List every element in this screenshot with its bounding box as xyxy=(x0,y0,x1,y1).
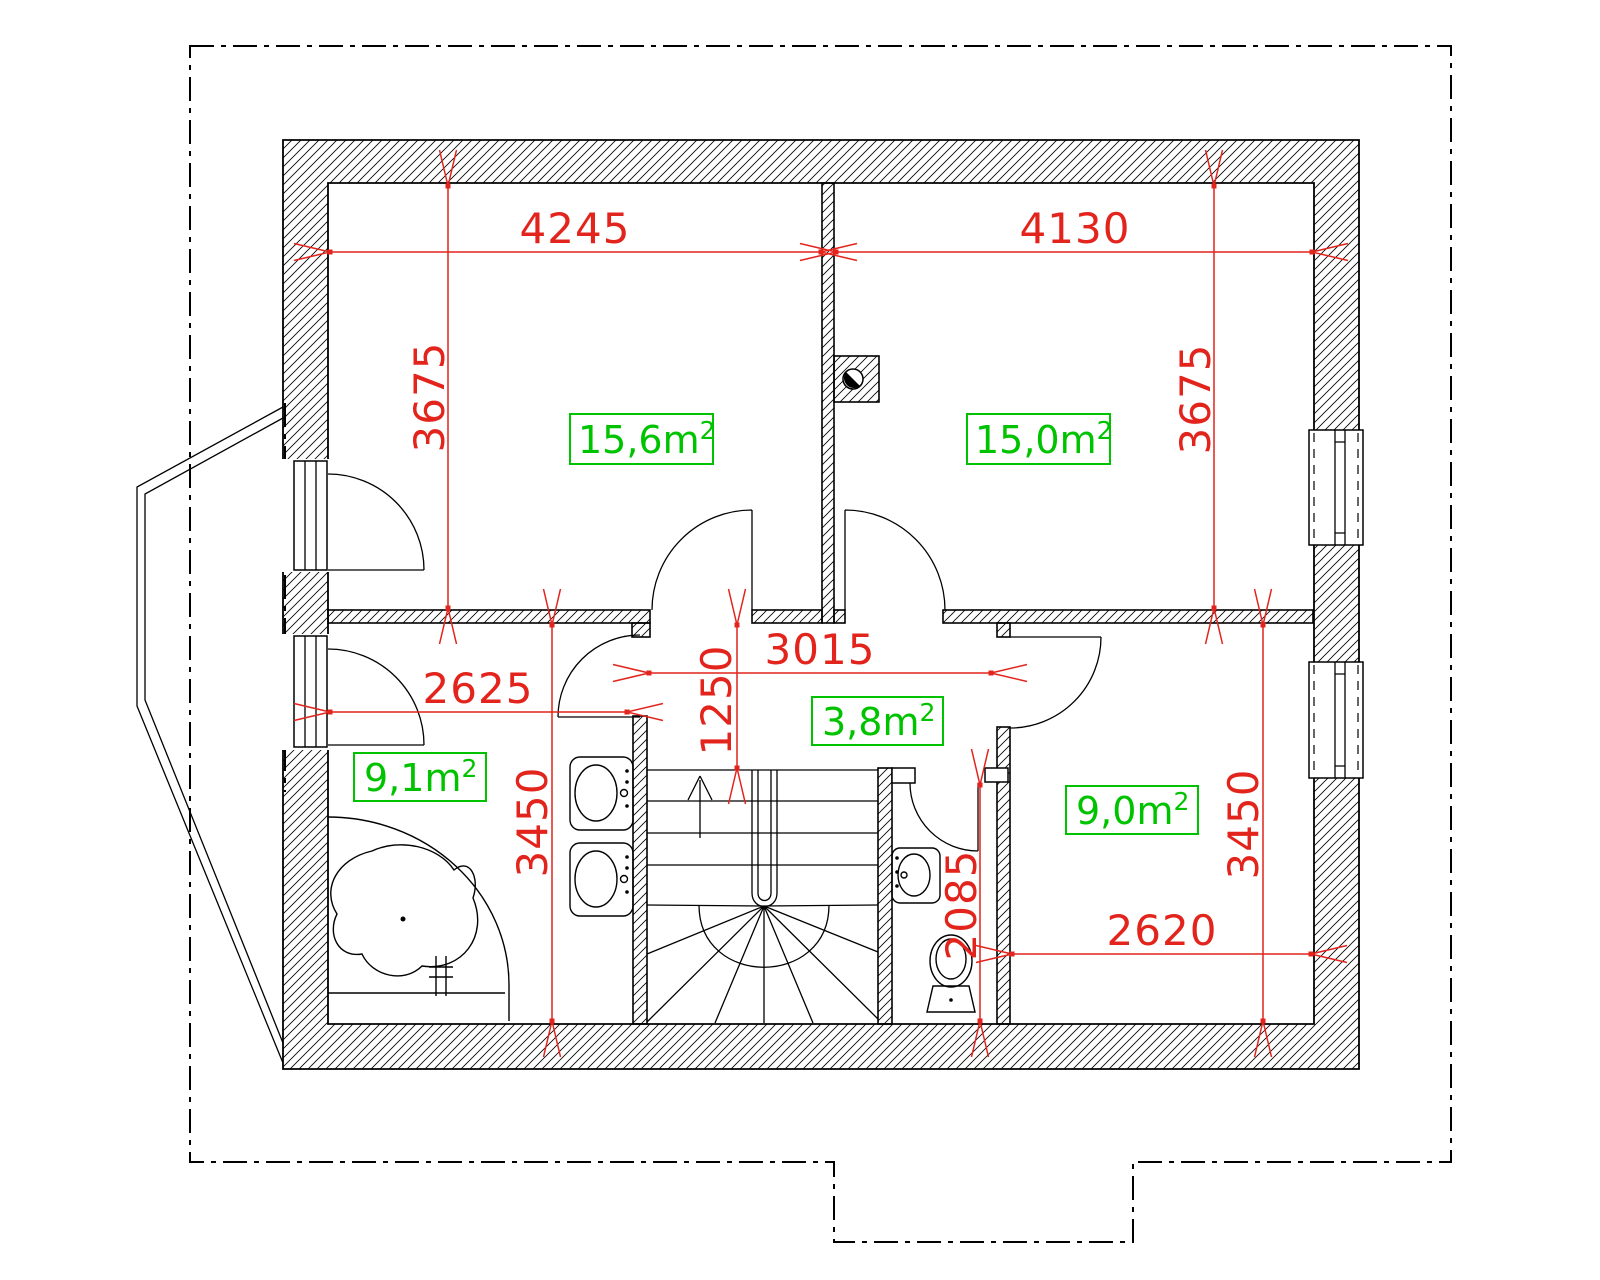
area-unit: m xyxy=(1060,418,1097,462)
dim-bedroom-left-width: 4245 xyxy=(330,204,821,253)
area-label-bedroom-left: 15,6m2 xyxy=(570,414,716,464)
area-unit: m xyxy=(663,418,700,462)
door-wc xyxy=(910,783,978,851)
stair-up-arrow xyxy=(688,776,712,838)
bathtub-basin xyxy=(331,845,478,976)
double-washbasin xyxy=(570,757,633,916)
washbasin-2-tap-icon xyxy=(621,876,628,883)
svg-text:15,0m2: 15,0m2 xyxy=(975,416,1113,462)
dim-label: 3675 xyxy=(405,342,454,453)
floor-plan-canvas: 4245 4130 3675 3675 3015 1250 2625 3450 xyxy=(0,0,1600,1280)
washbasin-1-counter xyxy=(570,757,633,830)
door-bathroom-hall xyxy=(558,635,640,717)
floor-plan-drawing: 4245 4130 3675 3675 3015 1250 2625 3450 xyxy=(0,0,1600,1280)
window-frame xyxy=(294,461,327,570)
wc-basin-counter xyxy=(892,848,940,903)
area-value: 9,0 xyxy=(1076,789,1136,833)
balcony-door-bathroom xyxy=(294,636,327,747)
stair-treads-straight xyxy=(647,770,878,865)
area-label-room-bottom-right: 9,0m2 xyxy=(1066,786,1198,834)
bathtub-deck xyxy=(328,817,509,1021)
door-bedroom-right-hall xyxy=(845,510,945,610)
dim-label: 4245 xyxy=(520,204,631,253)
dim-label: 2620 xyxy=(1107,906,1218,955)
window-frame xyxy=(294,636,327,747)
svg-text:9,0m2: 9,0m2 xyxy=(1076,787,1189,833)
area-label-bedroom-right: 15,0m2 xyxy=(967,414,1113,464)
bathtub-drain xyxy=(401,917,406,922)
stair-winder-treads xyxy=(647,905,878,1023)
dim-label: 3015 xyxy=(765,625,876,674)
wc-washbasin xyxy=(892,848,940,903)
svg-text:3,8m2: 3,8m2 xyxy=(822,698,935,744)
dim-label: 1250 xyxy=(692,645,741,756)
bathtub-faucet-icon xyxy=(429,956,453,996)
wc-basin-bowl xyxy=(898,854,930,896)
area-value: 15,0 xyxy=(975,418,1060,462)
hall-wall-mid-segment xyxy=(752,610,822,623)
dim-label: 3450 xyxy=(1219,769,1268,880)
room9-door-jamb xyxy=(997,623,1010,637)
washbasin-1-tap-icon xyxy=(621,790,628,797)
stair-wc-wall xyxy=(878,768,892,1024)
staircase xyxy=(647,770,878,1023)
dim-bedroom-right-height: 3675 xyxy=(1171,186,1220,608)
svg-text:9,1m2: 9,1m2 xyxy=(364,754,477,800)
washbasin-2-counter xyxy=(570,843,633,916)
dim-room-bottom-right-width: 2620 xyxy=(1012,906,1311,955)
door-bedroom-left-balcony xyxy=(328,474,424,570)
area-label-hall: 3,8m2 xyxy=(812,697,943,745)
window-frame xyxy=(1309,662,1363,778)
wc-jamb-right xyxy=(985,768,1008,782)
stair-handrail xyxy=(752,770,777,907)
dimensions: 4245 4130 3675 3675 3015 1250 2625 3450 xyxy=(330,186,1312,1021)
dim-room-bottom-right-height: 3450 xyxy=(1219,625,1268,1021)
bay-inner-line xyxy=(145,418,283,1043)
wc-basin-tap-icon xyxy=(901,872,907,878)
dim-label: 3450 xyxy=(508,767,557,878)
left-dormer-bay xyxy=(137,407,283,1063)
dim-label: 3675 xyxy=(1171,344,1220,455)
dim-label: 4130 xyxy=(1020,204,1131,253)
dim-label: 2085 xyxy=(937,850,986,961)
dim-bathroom-width: 2625 xyxy=(330,664,627,713)
area-unit: m xyxy=(424,756,461,800)
partition-bedrooms xyxy=(822,183,834,623)
window-right-bottom xyxy=(1309,662,1363,778)
hall-wall-stub xyxy=(834,610,845,623)
area-labels: 15,6m2 15,0m2 3,8m2 9,1m2 9,0m2 xyxy=(354,414,1198,834)
area-unit: m xyxy=(1136,789,1173,833)
window-right-top xyxy=(1309,430,1363,545)
area-sup: 2 xyxy=(1173,787,1189,816)
washbasin-2-bowl xyxy=(575,851,617,907)
area-label-bathroom: 9,1m2 xyxy=(354,753,486,801)
area-value: 15,6 xyxy=(578,418,663,462)
hall-wall-right-segment xyxy=(943,610,1313,623)
door-bathroom-balcony xyxy=(328,649,424,745)
door-room-bottom-right xyxy=(1010,637,1101,728)
window-frame xyxy=(1309,430,1363,545)
dim-bedroom-left-height: 3675 xyxy=(405,186,454,608)
dim-bedroom-right-width: 4130 xyxy=(836,204,1312,253)
dim-label: 2625 xyxy=(423,664,534,713)
washbasin-1-bowl xyxy=(575,765,617,821)
dim-hall-depth: 1250 xyxy=(692,625,741,768)
corner-bathtub xyxy=(328,817,509,1021)
area-sup: 2 xyxy=(461,754,477,783)
wc-jamb-left xyxy=(892,768,915,783)
area-value: 9,1 xyxy=(364,756,424,800)
door-bedroom-left-hall xyxy=(652,510,752,610)
hall-wall-left-segment xyxy=(328,610,650,623)
svg-text:15,6m2: 15,6m2 xyxy=(578,416,716,462)
area-unit: m xyxy=(882,700,919,744)
balcony-door-top-left xyxy=(294,461,327,570)
toilet-flush-dot xyxy=(949,998,953,1002)
bathroom-stair-wall xyxy=(633,716,647,1024)
area-value: 3,8 xyxy=(822,700,882,744)
area-sup: 2 xyxy=(700,416,716,445)
area-sup: 2 xyxy=(919,698,935,727)
area-sup: 2 xyxy=(1097,416,1113,445)
